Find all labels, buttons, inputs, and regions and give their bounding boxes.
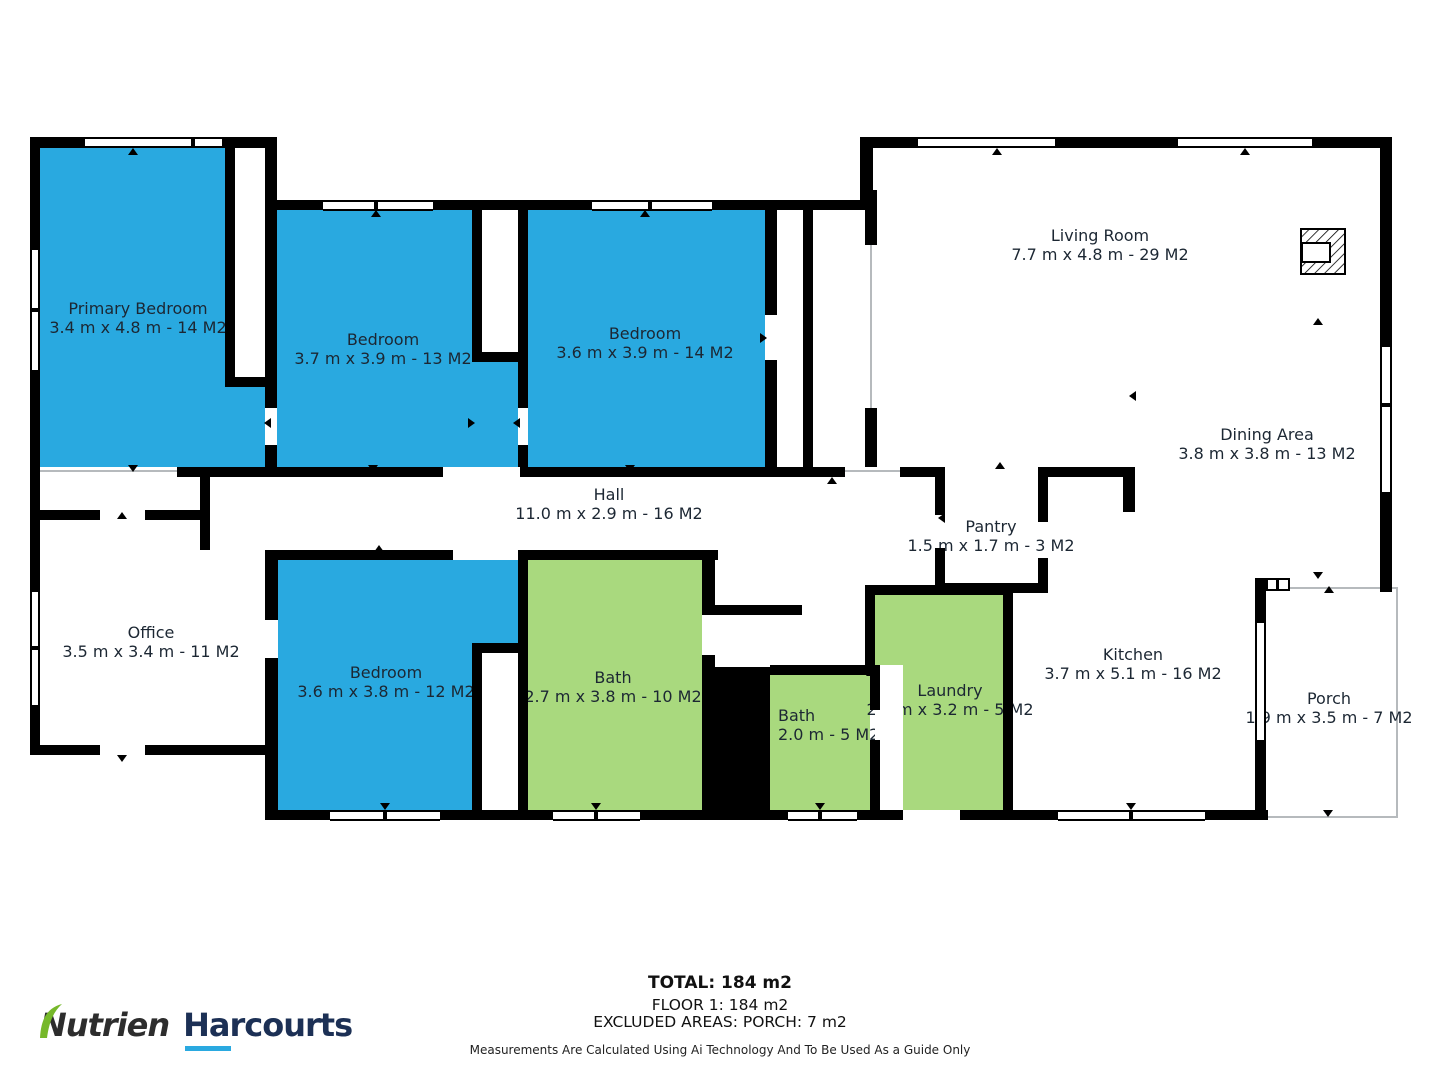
door-arrow xyxy=(117,512,127,519)
window-arrow xyxy=(1323,810,1333,817)
wall xyxy=(30,467,40,477)
window-mullion xyxy=(374,200,378,211)
window-arrow xyxy=(371,210,381,217)
wall xyxy=(518,210,528,408)
fireplace-icon xyxy=(1300,228,1346,275)
window xyxy=(1255,623,1266,740)
room-label-bath-small: Bath2.0 m - 5 M2 xyxy=(778,706,879,744)
wall xyxy=(712,200,873,210)
room-label-bedroom-3: Bedroom3.6 m x 3.9 m - 14 M2 xyxy=(556,324,733,362)
wall xyxy=(520,467,845,477)
logo-harcourts-text: Harcourts xyxy=(183,1006,352,1044)
wall xyxy=(265,210,277,408)
wall xyxy=(265,445,277,477)
wall xyxy=(702,655,715,680)
leaf-icon xyxy=(34,1002,64,1042)
window-mullion xyxy=(30,646,40,650)
wall xyxy=(770,665,880,675)
door-arrow xyxy=(468,418,475,428)
window xyxy=(1380,347,1392,492)
wall xyxy=(265,550,278,620)
door-arrow xyxy=(1313,318,1323,325)
door-arrow xyxy=(1313,572,1323,579)
wall xyxy=(1003,590,1013,810)
wall xyxy=(265,200,323,210)
room-label-porch: Porch1.9 m x 3.5 m - 7 M2 xyxy=(1245,689,1412,727)
window-mullion xyxy=(648,200,652,211)
wall xyxy=(1038,467,1048,522)
window-mullion xyxy=(30,308,40,312)
wall xyxy=(765,360,777,467)
wall xyxy=(200,473,210,550)
wall xyxy=(803,210,813,467)
closet xyxy=(482,210,518,352)
brand-logo: Nutrien Harcourts xyxy=(40,1006,352,1044)
wall xyxy=(1255,578,1266,623)
wall xyxy=(1045,467,1135,477)
wall xyxy=(865,190,877,245)
wall xyxy=(865,585,875,675)
wall xyxy=(145,745,275,755)
window-arrow xyxy=(815,803,825,810)
window-arrow xyxy=(128,148,138,155)
window-mullion xyxy=(191,137,195,148)
door-arrow xyxy=(264,418,271,428)
wall xyxy=(30,370,40,592)
wall xyxy=(265,550,453,560)
wall xyxy=(518,445,528,467)
wall xyxy=(225,148,235,387)
window-mullion xyxy=(1276,578,1279,591)
door-arrow xyxy=(513,418,520,428)
wall xyxy=(177,467,443,477)
window xyxy=(788,810,857,821)
wall xyxy=(30,510,100,520)
wall xyxy=(865,585,1008,595)
void-block xyxy=(702,667,770,810)
wall xyxy=(433,200,592,210)
wall xyxy=(712,605,802,615)
window-mullion xyxy=(818,810,822,821)
door-arrow xyxy=(128,465,138,472)
opening-line xyxy=(870,245,872,408)
wall xyxy=(472,210,482,362)
wall xyxy=(1123,467,1135,512)
window xyxy=(592,200,712,211)
wall xyxy=(1055,137,1178,148)
door-arrow xyxy=(938,513,945,523)
wall xyxy=(960,810,1058,820)
opening-line xyxy=(40,470,177,472)
wall xyxy=(440,810,553,820)
window-arrow xyxy=(591,803,601,810)
wall xyxy=(857,810,903,820)
door-arrow xyxy=(760,333,767,343)
room-label-living-room: Living Room7.7 m x 4.8 m - 29 M2 xyxy=(1011,226,1188,264)
door-arrow xyxy=(1129,391,1136,401)
window-arrow xyxy=(380,803,390,810)
window-arrow xyxy=(640,210,650,217)
opening-line xyxy=(845,470,902,472)
wall xyxy=(265,810,330,820)
door-arrow xyxy=(117,755,127,762)
closet xyxy=(235,148,265,377)
room-label-hall: Hall11.0 m x 2.9 m - 16 M2 xyxy=(515,485,702,523)
logo-harcourts: Harcourts xyxy=(183,1006,352,1044)
door-arrow xyxy=(610,553,620,560)
window-mullion xyxy=(1129,810,1133,821)
wall xyxy=(865,408,877,467)
wall xyxy=(1380,492,1392,592)
logo-underline xyxy=(185,1046,231,1051)
wall xyxy=(472,643,518,653)
window xyxy=(323,200,433,211)
window-mullion xyxy=(1380,403,1392,407)
room-label-bath-main: Bath2.7 m x 3.8 m - 10 M2 xyxy=(524,668,701,706)
door-arrow xyxy=(625,465,635,472)
door-arrow xyxy=(866,669,876,676)
room-label-dining-area: Dining Area3.8 m x 3.8 m - 13 M2 xyxy=(1178,425,1355,463)
room-label-kitchen: Kitchen3.7 m x 5.1 m - 16 M2 xyxy=(1044,645,1221,683)
floorplan-page: Primary Bedroom3.4 m x 4.8 m - 14 M2 Bed… xyxy=(0,0,1440,1080)
wall xyxy=(870,740,880,810)
wall xyxy=(935,467,945,515)
door-arrow xyxy=(374,545,384,552)
door-arrow xyxy=(995,462,1005,469)
room-label-bedroom-4: Bedroom3.6 m x 3.8 m - 12 M2 xyxy=(297,663,474,701)
window xyxy=(85,137,222,148)
wall xyxy=(518,560,528,810)
window xyxy=(918,137,1055,148)
wall xyxy=(265,658,278,820)
door-arrow xyxy=(1324,586,1334,593)
wall xyxy=(30,137,40,255)
room-label-office: Office3.5 m x 3.4 m - 11 M2 xyxy=(62,623,239,661)
logo-nutrien: Nutrien xyxy=(40,1006,169,1044)
window-arrow xyxy=(992,148,1002,155)
wall xyxy=(640,810,788,820)
window xyxy=(1178,137,1312,148)
room-label-primary-bedroom: Primary Bedroom3.4 m x 4.8 m - 14 M2 xyxy=(49,299,226,337)
door-arrow xyxy=(827,477,837,484)
window-arrow xyxy=(1126,803,1136,810)
room-label-pantry: Pantry1.5 m x 1.7 m - 3 M2 xyxy=(907,517,1074,555)
wall xyxy=(1255,740,1266,820)
window-arrow xyxy=(1240,148,1250,155)
wall xyxy=(1380,137,1392,347)
total-area-text: TOTAL: 184 m2 xyxy=(0,973,1440,993)
closet xyxy=(482,653,518,810)
room-label-bedroom-2: Bedroom3.7 m x 3.9 m - 13 M2 xyxy=(294,330,471,368)
wall xyxy=(472,653,482,810)
window-mullion xyxy=(383,810,387,821)
wall xyxy=(765,210,777,315)
wall xyxy=(30,745,100,755)
window-mullion xyxy=(594,810,598,821)
door-arrow xyxy=(368,465,378,472)
